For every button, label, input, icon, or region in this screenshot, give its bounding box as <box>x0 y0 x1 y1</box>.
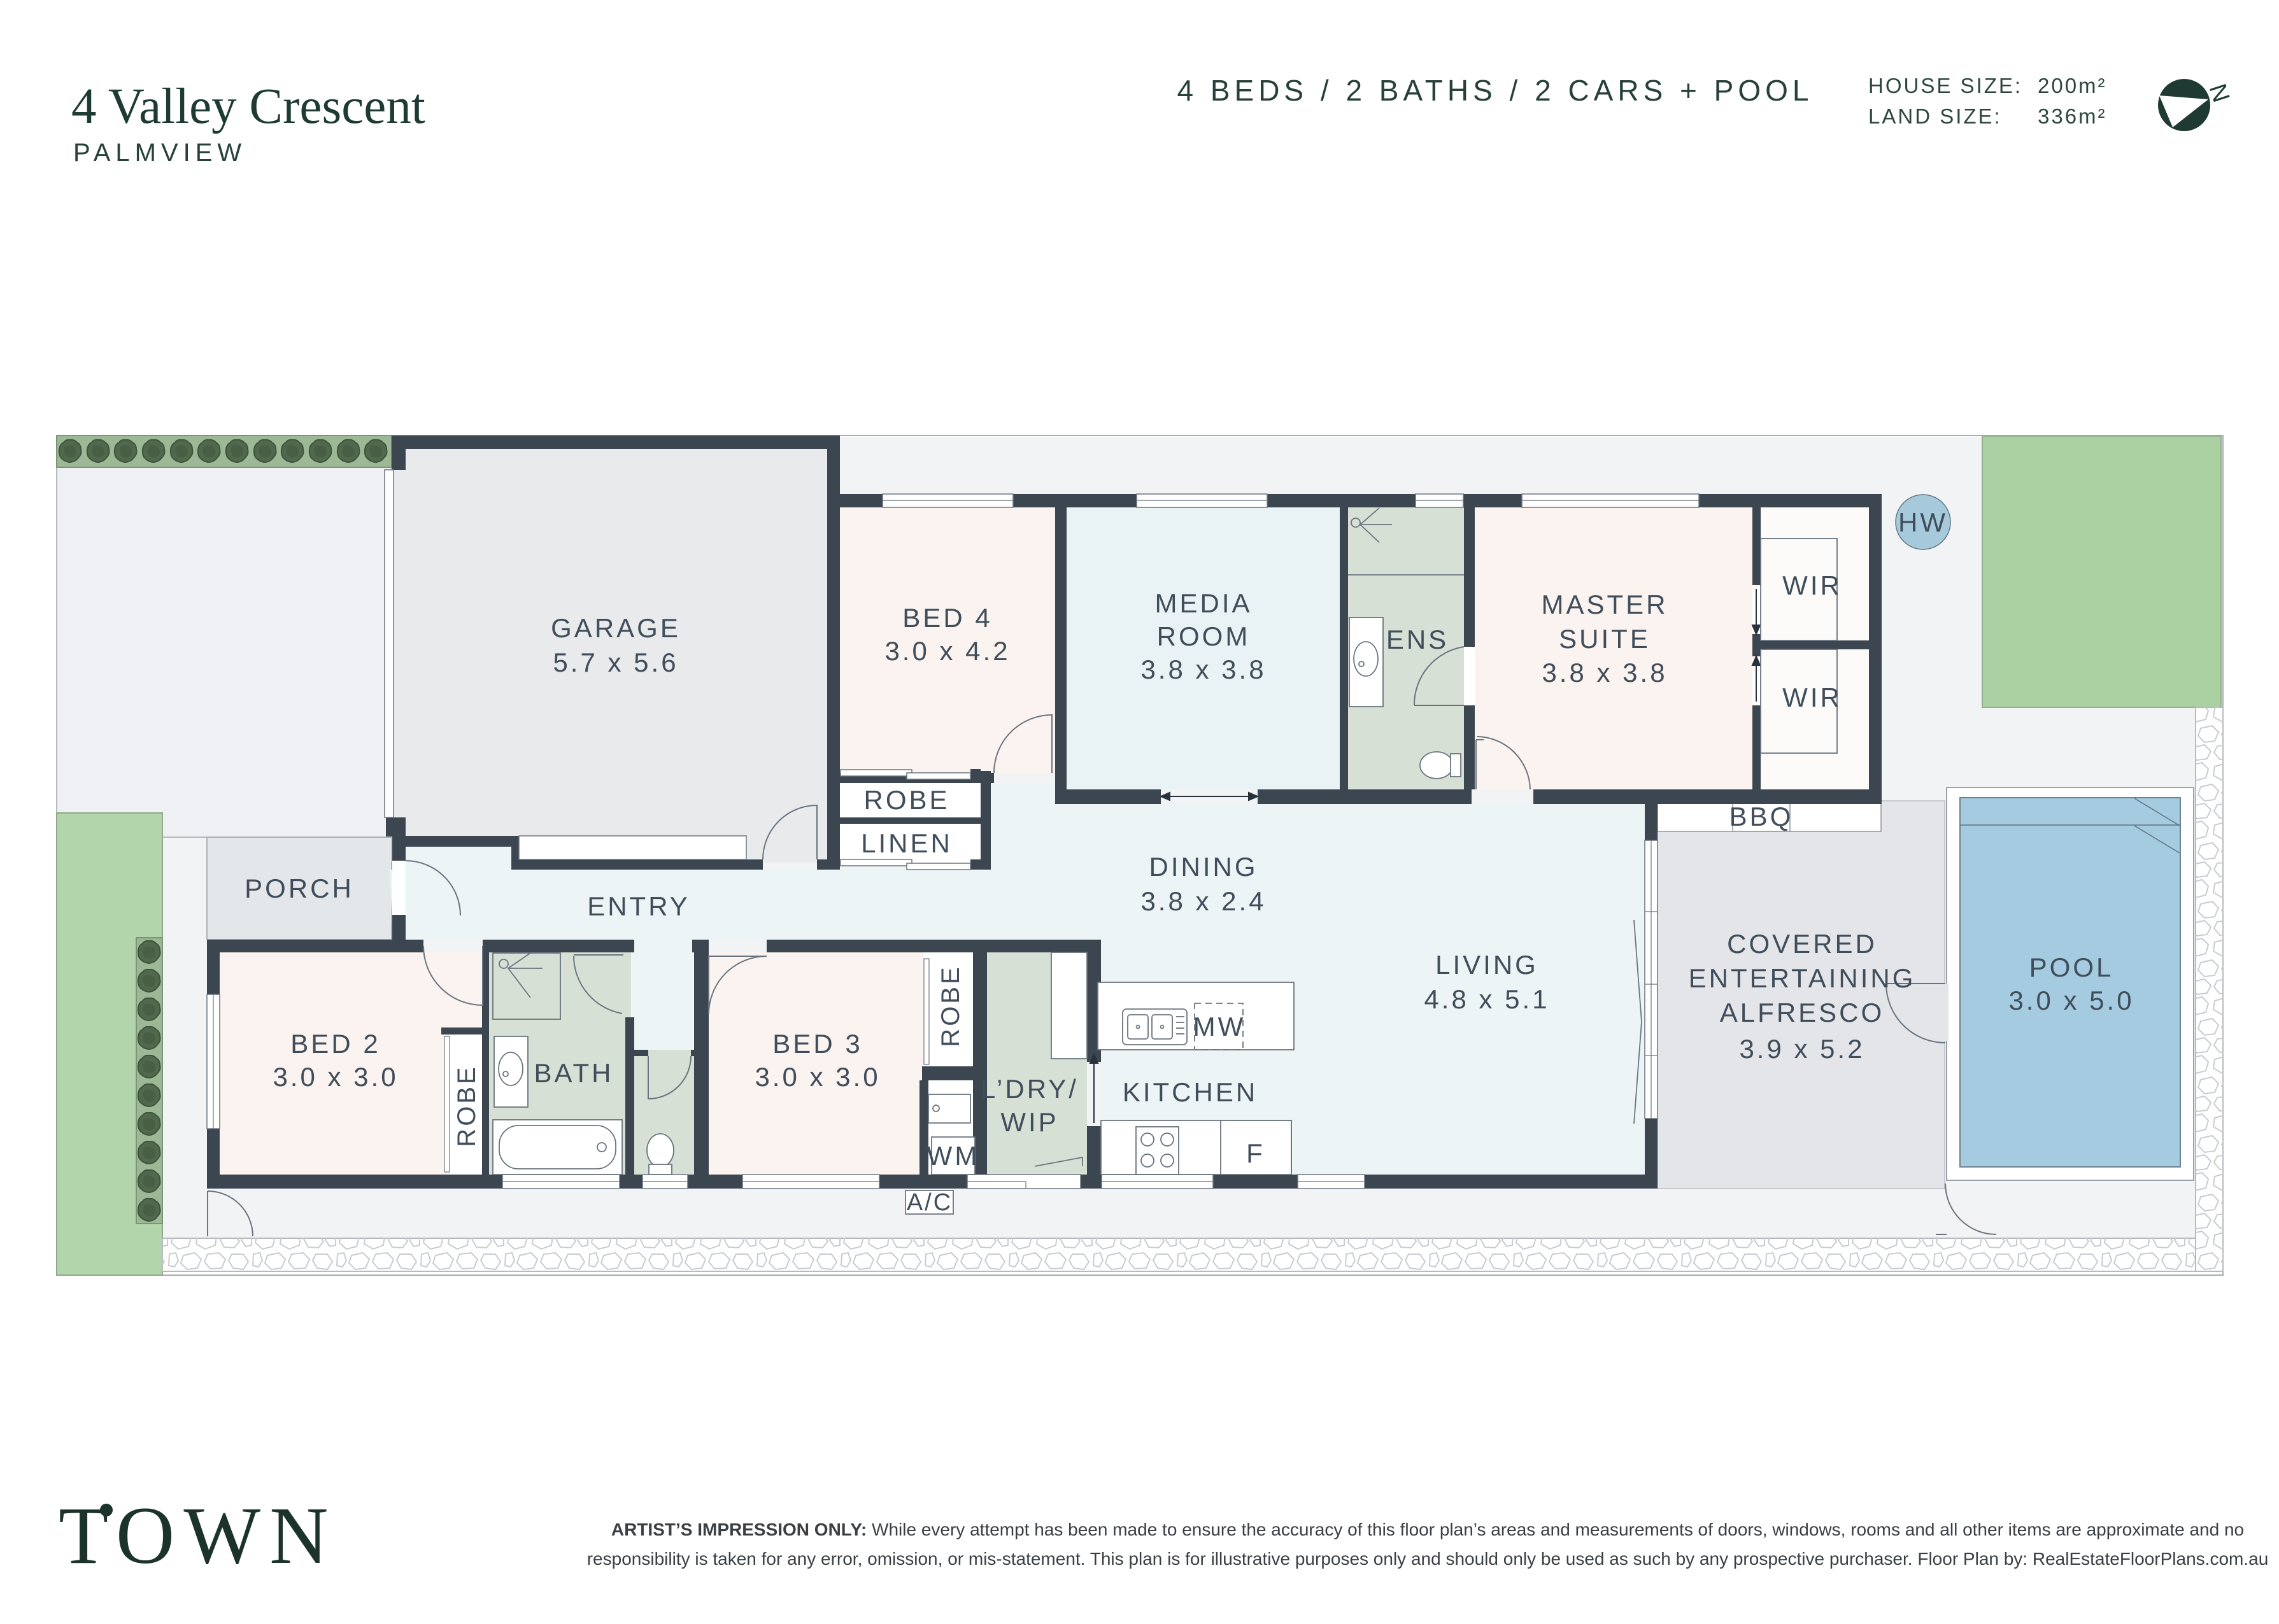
svg-text:3.8 x 3.8: 3.8 x 3.8 <box>1140 654 1266 684</box>
svg-text:5.7 x 5.6: 5.7 x 5.6 <box>553 647 678 677</box>
svg-text:ROBE: ROBE <box>453 1064 481 1147</box>
svg-text:3.9 x 5.2: 3.9 x 5.2 <box>1739 1034 1864 1064</box>
svg-text:KITCHEN: KITCHEN <box>1123 1077 1258 1107</box>
svg-text:3.8 x 2.4: 3.8 x 2.4 <box>1140 886 1266 916</box>
svg-text:3.8 x 3.8: 3.8 x 3.8 <box>1542 658 1667 688</box>
svg-text:PALMVIEW: PALMVIEW <box>73 139 246 167</box>
svg-text:WIP: WIP <box>1000 1107 1058 1137</box>
svg-text:MW: MW <box>1193 1012 1246 1041</box>
svg-text:WM: WM <box>927 1141 980 1171</box>
svg-text:GARAGE: GARAGE <box>551 613 681 643</box>
svg-text:4 BEDS / 2 BATHS / 2 CARS: 4 BEDS / 2 BATHS / 2 CARS + POOL <box>1177 74 1813 107</box>
svg-text:3.0 x 5.0: 3.0 x 5.0 <box>2008 985 2134 1015</box>
svg-text:DINING: DINING <box>1149 852 1258 882</box>
svg-text:BED 4: BED 4 <box>902 603 992 633</box>
svg-text:3.0 x 3.0: 3.0 x 3.0 <box>273 1062 398 1092</box>
svg-text:BBQ: BBQ <box>1729 801 1794 831</box>
svg-text:336m²: 336m² <box>2038 104 2107 128</box>
svg-text:LAND SIZE:: LAND SIZE: <box>1868 104 2002 128</box>
svg-text:POOL: POOL <box>2029 952 2114 982</box>
svg-text:L’DRY/: L’DRY/ <box>981 1074 1079 1104</box>
svg-text:ROBE: ROBE <box>937 964 965 1047</box>
svg-text:3.0 x 4.2: 3.0 x 4.2 <box>884 636 1010 666</box>
svg-text:3.0 x 3.0: 3.0 x 3.0 <box>755 1062 880 1092</box>
svg-text:ROOM: ROOM <box>1157 621 1251 651</box>
svg-text:A/C: A/C <box>907 1189 953 1216</box>
svg-text:PORCH: PORCH <box>245 873 354 903</box>
svg-text:WIR: WIR <box>1782 682 1842 712</box>
svg-text:LIVING: LIVING <box>1435 950 1538 980</box>
svg-text:N: N <box>2204 81 2234 106</box>
svg-text:BATH: BATH <box>534 1058 614 1088</box>
svg-text:SUITE: SUITE <box>1559 624 1651 654</box>
svg-text:TOWN: TOWN <box>59 1490 337 1581</box>
svg-text:F: F <box>1246 1138 1265 1168</box>
svg-text:ENTERTAINING: ENTERTAINING <box>1689 963 1916 993</box>
svg-text:ARTIST’S IMPRESSION ONLY: Whil: ARTIST’S IMPRESSION ONLY: While every at… <box>611 1520 2244 1539</box>
svg-text:LINEN: LINEN <box>861 828 953 858</box>
svg-text:ALFRESCO: ALFRESCO <box>1720 998 1884 1027</box>
svg-text:4 Valley Crescent: 4 Valley Crescent <box>71 79 425 134</box>
svg-text:BED 3: BED 3 <box>772 1029 862 1059</box>
svg-text:MEDIA: MEDIA <box>1154 588 1252 618</box>
svg-text:BED 2: BED 2 <box>290 1029 380 1059</box>
svg-text:WIR: WIR <box>1782 570 1842 600</box>
svg-text:COVERED: COVERED <box>1727 929 1877 959</box>
svg-text:200m²: 200m² <box>2038 74 2107 97</box>
svg-text:MASTER: MASTER <box>1541 590 1668 619</box>
svg-text:ENS: ENS <box>1386 625 1449 654</box>
svg-text:responsibility is taken for an: responsibility is taken for any error, o… <box>587 1549 2269 1569</box>
svg-text:ENTRY: ENTRY <box>587 891 690 921</box>
svg-text:HW: HW <box>1898 507 1948 537</box>
svg-text:4.8 x 5.1: 4.8 x 5.1 <box>1424 984 1549 1014</box>
svg-text:HOUSE SIZE:: HOUSE SIZE: <box>1868 74 2022 97</box>
svg-text:ROBE: ROBE <box>863 785 949 815</box>
